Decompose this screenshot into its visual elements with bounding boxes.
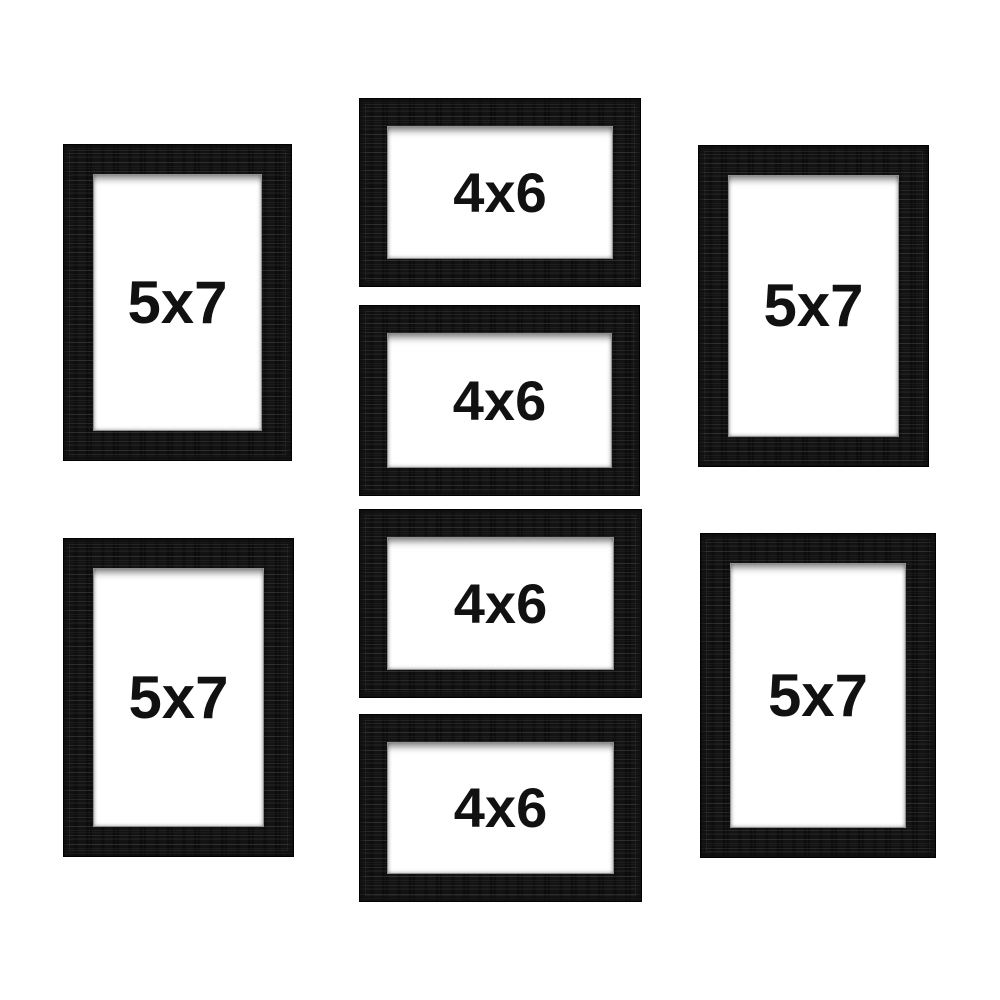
photo-frame-5x7-bottom-right: 5x7	[700, 533, 936, 858]
photo-mat-window: 5x7	[93, 568, 264, 827]
photo-mat-window: 4x6	[387, 333, 612, 468]
photo-frame-5x7-top-right: 5x7	[698, 145, 929, 467]
photo-frame-4x6-center-row3: 4x6	[359, 509, 642, 698]
photo-mat-window: 4x6	[387, 742, 614, 874]
photo-mat-window: 4x6	[387, 126, 613, 259]
photo-frame-4x6-center-row4: 4x6	[359, 714, 642, 902]
frame-size-label: 5x7	[763, 276, 863, 336]
photo-frame-5x7-top-left: 5x7	[63, 144, 292, 461]
photo-frame-4x6-center-row1: 4x6	[359, 98, 641, 287]
photo-mat-window: 5x7	[728, 175, 899, 437]
photo-mat-window: 4x6	[387, 537, 614, 670]
photo-frame-5x7-bottom-left: 5x7	[63, 538, 294, 857]
frame-size-label: 5x7	[128, 668, 228, 728]
photo-frame-4x6-center-row2: 4x6	[359, 305, 640, 496]
frame-size-label: 5x7	[768, 666, 868, 726]
frame-size-label: 4x6	[454, 780, 547, 836]
product-image-frame-set: 5x7 4x6 5x7 4x6 4x6 5x7 4x6 5x7	[0, 0, 1000, 1000]
frame-size-label: 4x6	[454, 576, 547, 632]
photo-mat-window: 5x7	[93, 174, 262, 431]
frame-size-label: 4x6	[453, 373, 546, 429]
frame-size-label: 4x6	[453, 165, 546, 221]
frame-size-label: 5x7	[127, 273, 227, 333]
photo-mat-window: 5x7	[730, 563, 906, 828]
